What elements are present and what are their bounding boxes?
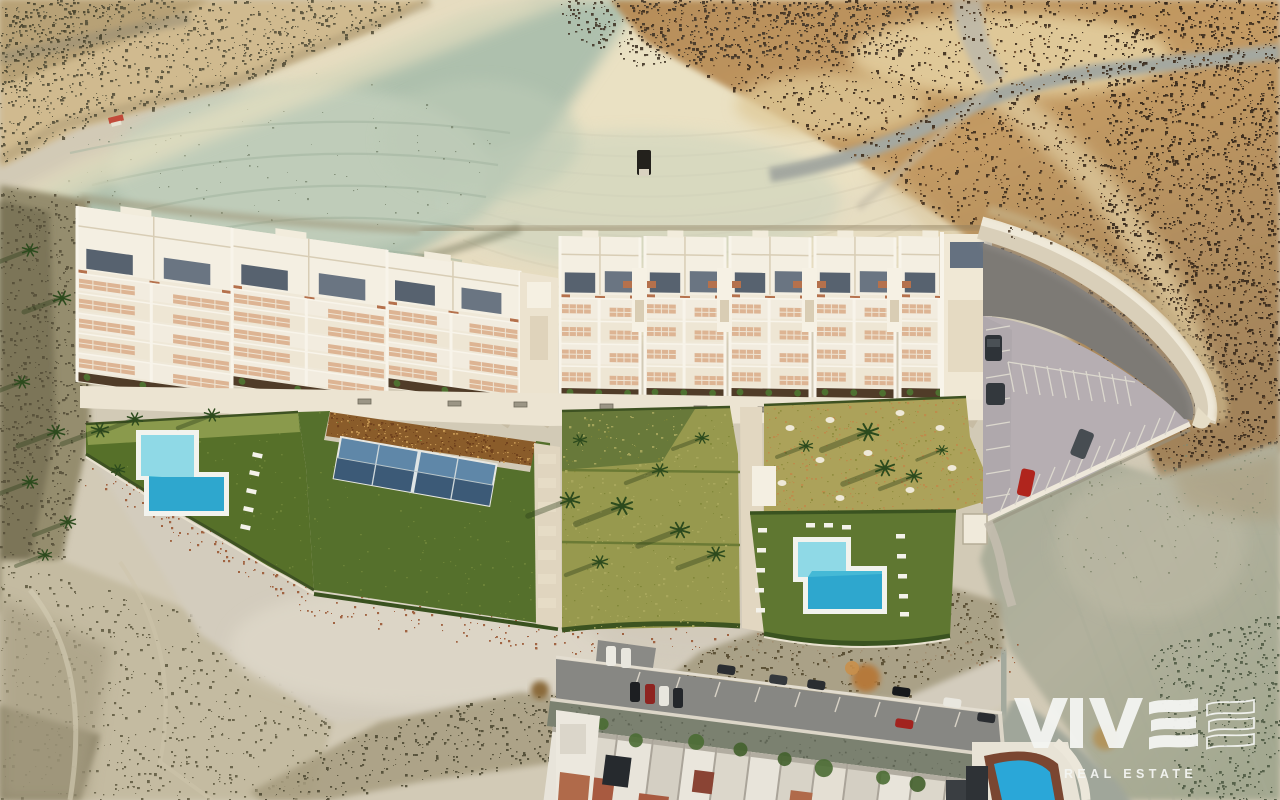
- svg-text:REAL ESTATE: REAL ESTATE: [1064, 767, 1197, 781]
